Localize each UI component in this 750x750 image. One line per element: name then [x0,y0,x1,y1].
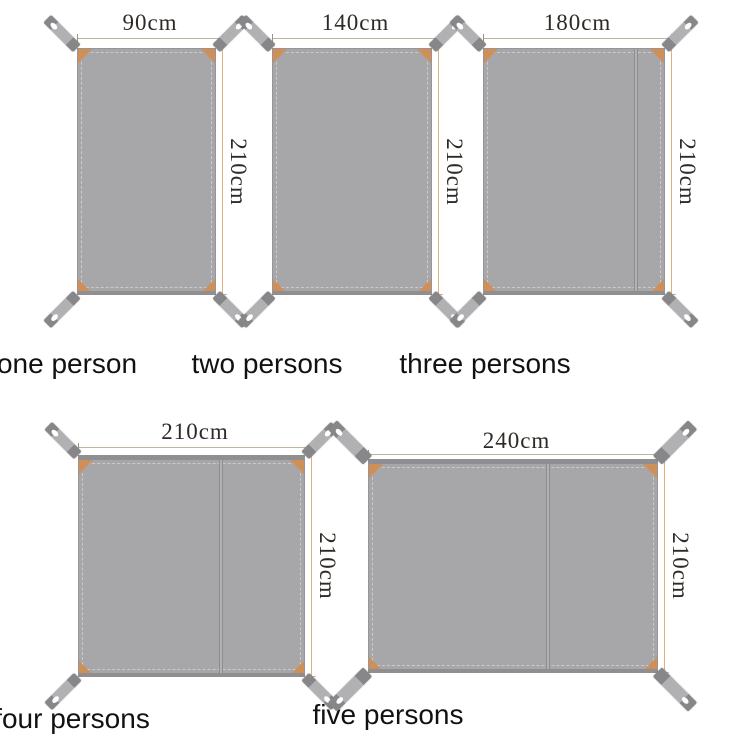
grommet-hole [681,696,690,705]
corner-patch [201,279,216,295]
width-dimension-line: 180cm [483,38,672,39]
corner-patch [77,279,92,295]
width-dimension-label: 140cm [322,10,390,36]
width-dimension-line: 90cm [77,38,223,39]
corner-patch [78,661,93,677]
corner-strap [238,15,275,52]
tarp-fabric [483,48,665,295]
corner-patch [368,657,383,673]
corner-patch [643,459,658,478]
corner-patch [483,48,498,63]
tarp-caption: three persons [399,348,570,380]
grommet-hole [50,313,59,322]
corner-strap [238,291,275,328]
corner-strap [449,15,486,52]
width-dimension-label: 210cm [161,419,229,445]
grommet-hole [456,21,465,30]
corner-strap [661,15,698,52]
width-dimension-line: 210cm [78,447,312,448]
corner-patch [417,48,432,63]
fold-seam [546,464,550,669]
width-dimension-label: 240cm [483,428,551,454]
tarp-fabric [272,48,432,295]
tarp-caption: four persons [0,703,150,735]
corner-strap [328,420,373,465]
corner-patch [201,48,216,63]
stitch-line [81,52,212,288]
corner-patch [78,455,93,474]
corner-patch [77,48,92,63]
height-dimension-line: 210cm [671,48,672,295]
corner-patch [290,455,305,474]
height-dimension-line: 210cm [664,459,665,673]
height-dimension-label: 210cm [667,532,693,600]
grommet-hole [335,696,344,705]
corner-patch [290,661,305,677]
height-dimension-line: 210cm [311,455,312,677]
height-dimension-label: 210cm [674,138,700,206]
corner-patch [650,279,665,295]
tarp-fabric [77,48,216,295]
stitch-line [372,467,654,666]
width-dimension-label: 180cm [544,10,612,36]
stitch-line [82,463,301,670]
height-dimension-label: 210cm [441,138,467,206]
height-dimension-line: 210cm [222,48,223,295]
grommet-hole [456,313,465,322]
corner-strap [44,422,81,459]
height-dimension-line: 210cm [438,48,439,295]
fold-seam [219,460,223,673]
tarp-caption: one person [0,348,137,380]
stitch-line [276,52,428,288]
tarp-fabric [78,455,305,677]
corner-strap [653,667,698,712]
fold-seam [634,49,638,291]
grommet-hole [681,427,690,436]
width-dimension-line: 240cm [368,454,665,455]
size-chart-canvas: { "diagram": { "type": "product-size-cha… [0,0,750,750]
corner-strap [653,420,698,465]
grommet-hole [335,427,344,436]
grommet-hole [683,21,692,30]
grommet-hole [50,21,59,30]
corner-patch [417,279,432,295]
grommet-hole [245,313,254,322]
tarp-caption: two persons [192,348,343,380]
corner-strap [43,291,80,328]
corner-strap [43,15,80,52]
corner-patch [650,48,665,63]
height-dimension-label: 210cm [314,532,340,600]
corner-patch [272,279,287,295]
width-dimension-label: 90cm [122,10,177,36]
corner-strap [661,291,698,328]
corner-patch [483,279,498,295]
grommet-hole [683,313,692,322]
width-dimension-line: 140cm [272,38,439,39]
height-dimension-label: 210cm [225,138,251,206]
grommet-hole [245,21,254,30]
corner-patch [643,657,658,673]
grommet-hole [51,428,60,437]
corner-patch [272,48,287,63]
grommet-hole [51,695,60,704]
corner-patch [368,459,383,478]
tarp-fabric [368,459,658,673]
